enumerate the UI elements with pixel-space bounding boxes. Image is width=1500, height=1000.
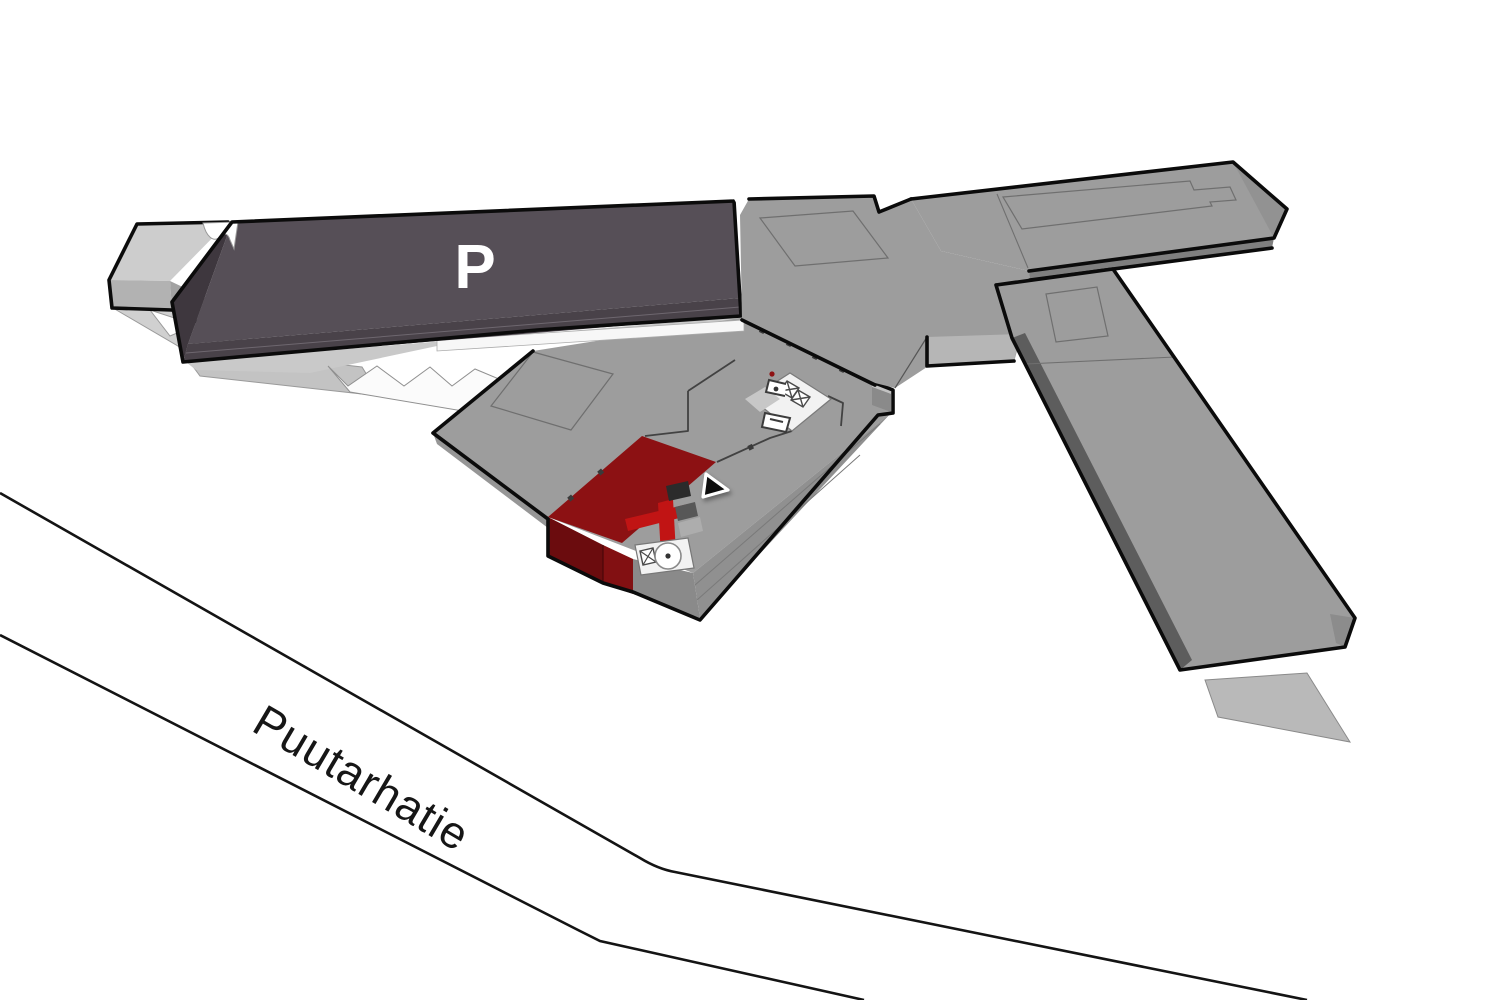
detached-ground-slab [1205,673,1350,742]
wayfinding-map: P Puutarhatie [0,0,1500,1000]
se-wing-roof[interactable] [996,269,1355,670]
spiral-center [665,553,670,558]
stair-icon [766,380,786,396]
spiral-stair-area [635,538,694,575]
southeast-wing[interactable] [996,269,1355,670]
main-building[interactable] [433,318,893,620]
west-wing-front [109,280,172,310]
exit-dot [769,371,774,376]
map-canvas: P Puutarhatie [0,0,1500,1000]
parking-label: P [454,233,495,302]
